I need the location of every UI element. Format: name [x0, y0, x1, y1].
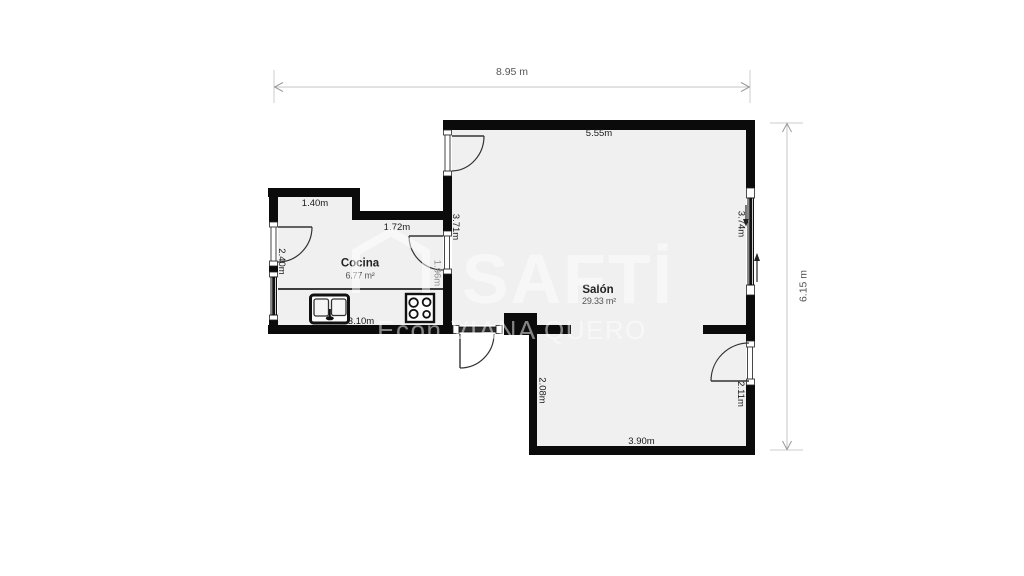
- svg-text:3.71m: 3.71m: [450, 214, 461, 240]
- svg-text:3.90m: 3.90m: [628, 436, 654, 447]
- svg-text:1.96m: 1.96m: [432, 260, 443, 286]
- svg-text:2.08m: 2.08m: [537, 377, 548, 403]
- svg-text:8.95 m: 8.95 m: [496, 66, 528, 78]
- svg-text:SAFTİ: SAFTİ: [462, 240, 674, 318]
- svg-text:2.11m: 2.11m: [735, 381, 746, 407]
- svg-text:3.74m: 3.74m: [736, 211, 747, 237]
- svg-text:6.15 m: 6.15 m: [798, 270, 810, 302]
- svg-text:2.40m: 2.40m: [276, 248, 287, 274]
- svg-text:5.55m: 5.55m: [586, 128, 612, 139]
- svg-text:6.77 m²: 6.77 m²: [345, 271, 374, 281]
- svg-text:Econ VIANA QUERO: Econ VIANA QUERO: [377, 315, 647, 345]
- svg-text:1.40m: 1.40m: [302, 198, 328, 209]
- svg-text:3.10m: 3.10m: [348, 316, 374, 327]
- svg-text:Cocina: Cocina: [341, 258, 380, 270]
